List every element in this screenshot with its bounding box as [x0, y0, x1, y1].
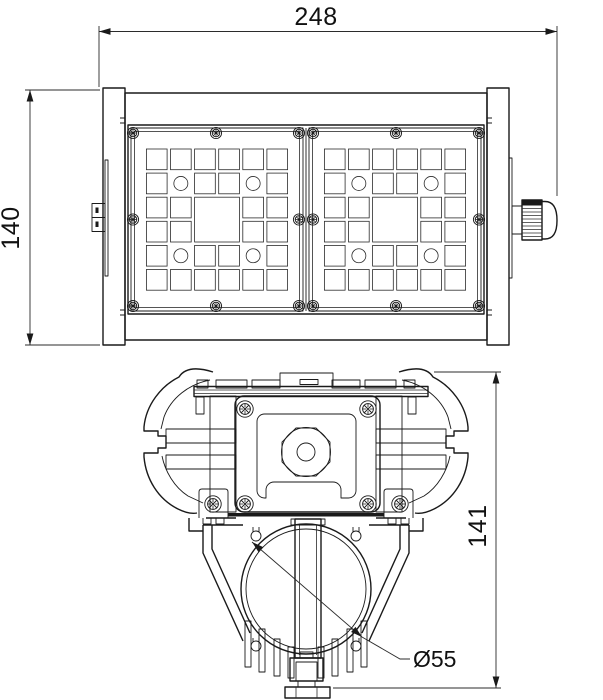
- front-view: 248 140: [0, 3, 557, 345]
- rail-teeth: [197, 373, 415, 388]
- plate-inner-outline: [257, 414, 356, 498]
- gland-dome: [542, 202, 557, 240]
- dim-height-label: 140: [0, 206, 25, 249]
- side-connector: [92, 160, 108, 276]
- end-cap-left: [103, 88, 125, 345]
- dimension-section-height: 141: [333, 372, 501, 688]
- gasket: [228, 513, 384, 517]
- heatsink-fins: [245, 621, 367, 678]
- lens-panel-left-inner: [135, 132, 300, 308]
- technical-drawing-page: 248 140: [0, 0, 603, 700]
- rail-center-tab: [300, 380, 318, 385]
- gland-threads: [522, 209, 542, 237]
- lens-array-right: [324, 149, 465, 290]
- center-pole: [291, 519, 325, 658]
- pivot-nut: [282, 428, 331, 477]
- end-cap-right: [487, 88, 509, 345]
- dim-width-label: 248: [294, 3, 337, 31]
- dimension-width: 248: [99, 3, 557, 196]
- lens-panel-right-inner: [313, 132, 478, 308]
- section-view: 141 Ø55: [144, 369, 501, 698]
- dim-section-height-label: 141: [464, 504, 492, 547]
- dim-tube-diameter-label: Ø55: [413, 646, 456, 672]
- rail-lines: [194, 390, 428, 394]
- lens-panel-left-frame: [131, 128, 303, 311]
- cable-gland: [509, 158, 557, 278]
- lens-panel-right-frame: [309, 128, 481, 311]
- dimension-height: 140: [0, 90, 100, 345]
- lens-array-left: [146, 149, 287, 290]
- drawing-canvas: 248 140: [0, 0, 603, 700]
- nut-octagon: [282, 428, 330, 476]
